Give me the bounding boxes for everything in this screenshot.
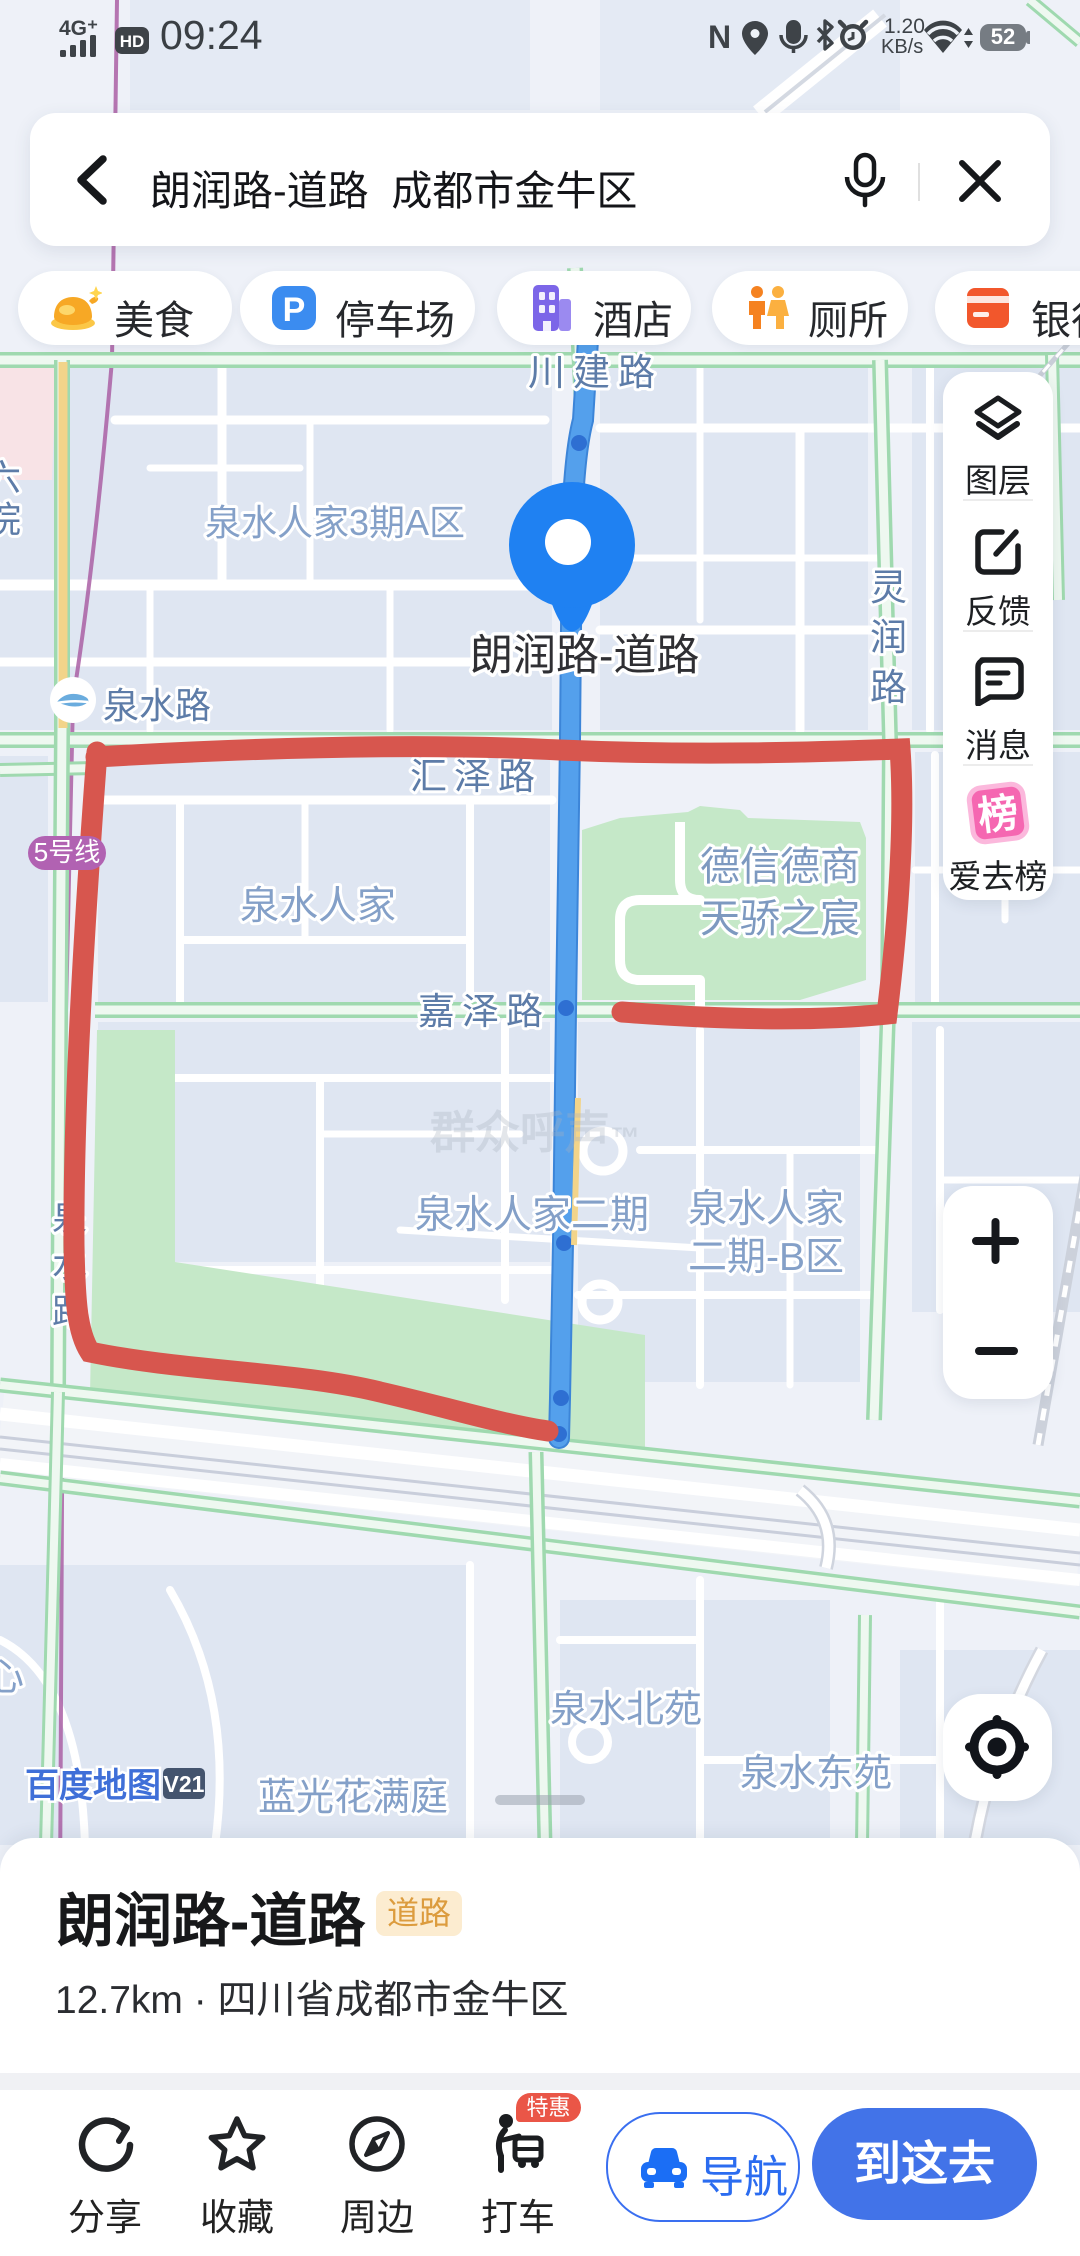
svg-text:泉水人家: 泉水人家 xyxy=(240,885,396,928)
svg-text:P: P xyxy=(283,291,306,329)
svg-text:川建路: 川建路 xyxy=(528,352,663,393)
svg-text:群众呼声™: 群众呼声™ xyxy=(430,1107,640,1158)
svg-text:泉水东苑: 泉水东苑 xyxy=(740,1753,892,1795)
svg-text:泉水路: 泉水路 xyxy=(103,685,211,726)
svg-text:汇泽路: 汇泽路 xyxy=(410,756,542,797)
svg-text:N: N xyxy=(708,19,731,55)
svg-text:嘉泽路: 嘉泽路 xyxy=(418,991,550,1032)
svg-text:泉水人家二期: 泉水人家二期 xyxy=(415,1194,649,1237)
svg-text:百度地图: 百度地图 xyxy=(25,1767,161,1805)
svg-text:榜: 榜 xyxy=(976,791,1021,840)
svg-text:1.20: 1.20 xyxy=(884,15,925,38)
svg-text:泉水北苑: 泉水北苑 xyxy=(550,1689,702,1731)
svg-text:泉水人家: 泉水人家 xyxy=(688,1188,844,1231)
svg-text:朗润路-道路: 朗润路-道路 xyxy=(470,632,699,680)
svg-text:德信德商: 德信德商 xyxy=(700,845,860,889)
svg-text:52: 52 xyxy=(991,24,1015,49)
svg-text:HD: HD xyxy=(120,32,145,51)
svg-text:灵: 灵 xyxy=(870,567,907,608)
svg-text:路: 路 xyxy=(870,667,907,708)
svg-text:心: 心 xyxy=(0,1657,24,1699)
svg-text:蓝光花满庭: 蓝光花满庭 xyxy=(258,1777,448,1819)
svg-text:天骄之宸: 天骄之宸 xyxy=(700,897,860,941)
svg-text:润: 润 xyxy=(870,617,907,658)
svg-text:二期-B区: 二期-B区 xyxy=(688,1236,844,1279)
svg-text:六: 六 xyxy=(0,457,21,498)
svg-text:KB/s: KB/s xyxy=(881,36,923,58)
svg-text:5号线: 5号线 xyxy=(34,837,100,867)
svg-text:院: 院 xyxy=(0,499,21,540)
svg-text:V21: V21 xyxy=(164,1771,205,1797)
svg-text:泉水人家3期A区: 泉水人家3期A区 xyxy=(205,502,465,543)
